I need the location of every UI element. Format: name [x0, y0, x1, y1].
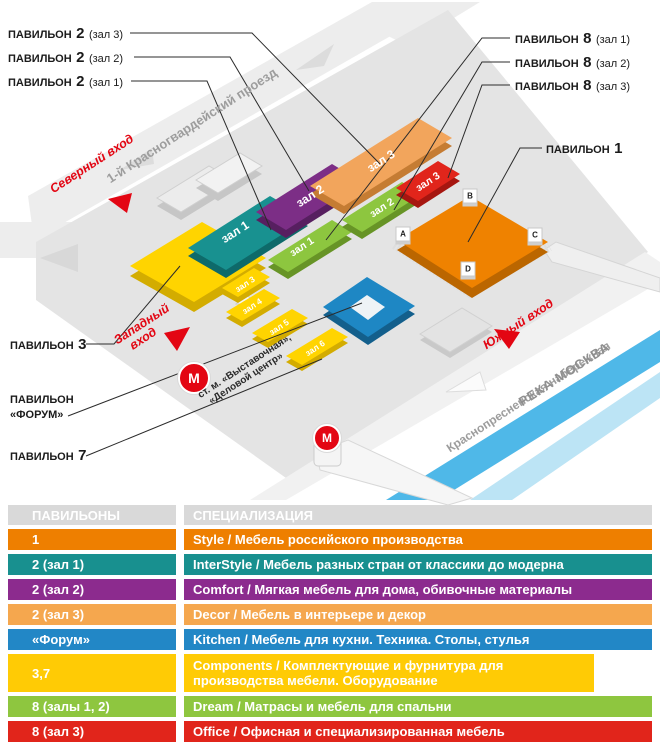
- specialization-table: ПАВИЛЬОНЫ СПЕЦИАЛИЗАЦИЯ 1 Style / Мебель…: [8, 505, 652, 742]
- table-row: 2 (зал 3) Decor / Мебель в интерьере и д…: [8, 604, 652, 625]
- specialization-cell: Kitchen / Мебель для кухни. Техника. Сто…: [184, 629, 652, 650]
- column-gap: [176, 604, 184, 625]
- specialization-cell: Decor / Мебель в интерьере и декор: [184, 604, 652, 625]
- column-gap: [176, 554, 184, 575]
- callout-text: ПАВИЛЬОН: [515, 58, 579, 70]
- pavilion-1-corner-c: C: [528, 228, 543, 243]
- column-header-specialization: СПЕЦИАЛИЗАЦИЯ: [184, 505, 652, 525]
- table-header-row: ПАВИЛЬОНЫ СПЕЦИАЛИЗАЦИЯ: [8, 505, 652, 525]
- pavilion-cell: 8 (залы 1, 2): [8, 696, 176, 717]
- callout-hall: (зал 1): [596, 34, 630, 46]
- callout-pavilion-2-hall-3: ПАВИЛЬОН 2 (зал 3): [8, 26, 123, 43]
- callout-number: 8: [583, 54, 591, 71]
- callout-number: 2: [76, 73, 84, 90]
- table-row: 2 (зал 2) Comfort / Мягкая мебель для до…: [8, 579, 652, 600]
- specialization-cell: InterStyle / Мебель разных стран от клас…: [184, 554, 652, 575]
- pavilion-cell: 3,7: [8, 654, 176, 692]
- pavilion-1-corner-d: D: [461, 262, 476, 277]
- callout-text: ПАВИЛЬОН: [8, 77, 72, 89]
- pavilion-cell: 2 (зал 3): [8, 604, 176, 625]
- callout-text: ПАВИЛЬОН: [10, 451, 74, 463]
- pavilion-cell: 8 (зал 3): [8, 721, 176, 742]
- pavilion-cell: 2 (зал 2): [8, 579, 176, 600]
- metro-icon: М: [313, 424, 341, 452]
- callout-pavilion-forum: ПАВИЛЬОН «ФОРУМ»: [10, 393, 74, 423]
- callout-text: «ФОРУМ»: [10, 408, 74, 423]
- callout-number: 7: [78, 447, 86, 464]
- callout-text: ПАВИЛЬОН: [515, 81, 579, 93]
- pavilion-1-corner-a: A: [396, 227, 411, 242]
- callout-text: ПАВИЛЬОН: [515, 34, 579, 46]
- callout-hall: (зал 1): [89, 77, 123, 89]
- specialization-cell: Comfort / Мягкая мебель для дома, обивоч…: [184, 579, 652, 600]
- column-gap: [176, 505, 184, 525]
- callout-pavilion-1: ПАВИЛЬОН 1: [546, 141, 622, 158]
- table-row: «Форум» Kitchen / Мебель для кухни. Техн…: [8, 629, 652, 650]
- callout-pavilion-8-hall-1: ПАВИЛЬОН 8 (зал 1): [515, 31, 630, 48]
- callout-number: 2: [76, 25, 84, 42]
- callout-text: ПАВИЛЬОН: [8, 29, 72, 41]
- callout-pavilion-2-hall-1: ПАВИЛЬОН 2 (зал 1): [8, 74, 123, 91]
- specialization-cell: Components / Комплектующие и фурнитура д…: [184, 654, 594, 692]
- callout-text: ПАВИЛЬОН: [10, 340, 74, 352]
- callout-hall: (зал 2): [596, 58, 630, 70]
- table-row: 8 (зал 3) Office / Офисная и специализир…: [8, 721, 652, 742]
- pavilion-cell: «Форум»: [8, 629, 176, 650]
- specialization-cell: Office / Офисная и специализированная ме…: [184, 721, 652, 742]
- expo-map-page: ПАВИЛЬОН 2 (зал 3) ПАВИЛЬОН 2 (зал 2) ПА…: [0, 0, 660, 751]
- table-row: 3,7 Components / Комплектующие и фурниту…: [8, 654, 652, 692]
- table-row: 1 Style / Мебель российского производств…: [8, 529, 652, 550]
- column-gap: [176, 529, 184, 550]
- callout-hall: (зал 3): [89, 29, 123, 41]
- callout-number: 8: [583, 77, 591, 94]
- callout-pavilion-3: ПАВИЛЬОН 3: [10, 337, 86, 354]
- column-gap: [176, 579, 184, 600]
- callout-pavilion-7: ПАВИЛЬОН 7: [10, 448, 86, 465]
- callout-number: 8: [583, 30, 591, 47]
- column-gap: [176, 654, 184, 692]
- callout-number: 2: [76, 49, 84, 66]
- callout-hall: (зал 3): [596, 81, 630, 93]
- table-row: 8 (залы 1, 2) Dream / Матрасы и мебель д…: [8, 696, 652, 717]
- callout-text: ПАВИЛЬОН: [8, 53, 72, 65]
- pavilion-1-corner-b: B: [463, 189, 478, 204]
- pavilion-cell: 1: [8, 529, 176, 550]
- callout-hall: (зал 2): [89, 53, 123, 65]
- callout-number: 3: [78, 336, 86, 353]
- callout-text: ПАВИЛЬОН: [10, 393, 74, 408]
- column-header-pavilions: ПАВИЛЬОНЫ: [8, 505, 176, 525]
- callout-pavilion-8-hall-2: ПАВИЛЬОН 8 (зал 2): [515, 55, 630, 72]
- callout-number: 1: [614, 140, 622, 157]
- callout-text: ПАВИЛЬОН: [546, 144, 610, 156]
- table-row: 2 (зал 1) InterStyle / Мебель разных стр…: [8, 554, 652, 575]
- specialization-cell: Dream / Матрасы и мебель для спальни: [184, 696, 652, 717]
- column-gap: [176, 721, 184, 742]
- pavilion-cell: 2 (зал 1): [8, 554, 176, 575]
- callout-pavilion-8-hall-3: ПАВИЛЬОН 8 (зал 3): [515, 78, 630, 95]
- callout-pavilion-2-hall-2: ПАВИЛЬОН 2 (зал 2): [8, 50, 123, 67]
- column-gap: [176, 696, 184, 717]
- column-gap: [176, 629, 184, 650]
- specialization-cell: Style / Мебель российского производства: [184, 529, 652, 550]
